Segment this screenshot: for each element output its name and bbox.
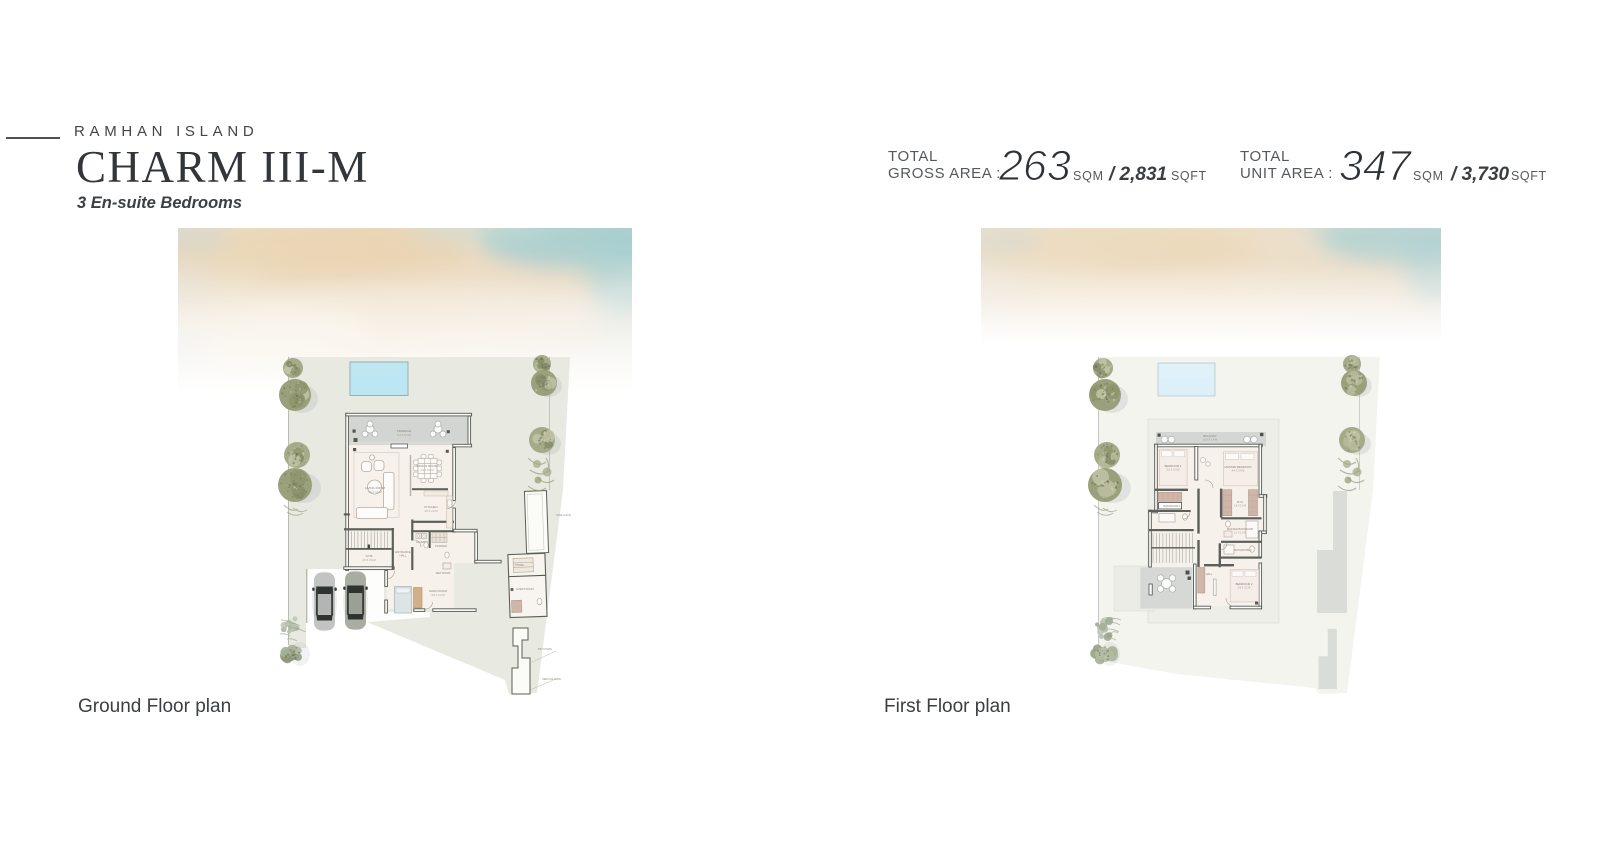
svg-text:6.1 X 3.1 M: 6.1 X 3.1 M — [397, 433, 410, 437]
svg-text:GUEST ROOM: GUEST ROOM — [516, 587, 534, 591]
svg-text:BEDROOM 1: BEDROOM 1 — [1165, 464, 1182, 468]
svg-text:HALL: HALL — [1206, 572, 1213, 576]
svg-text:4.5 X 2.0 M: 4.5 X 2.0 M — [362, 558, 375, 562]
svg-text:3.6 X 2.6 M: 3.6 X 2.6 M — [424, 509, 437, 513]
svg-text:BIN STORE: BIN STORE — [538, 647, 552, 651]
svg-text:KITCHEN: KITCHEN — [424, 505, 437, 509]
svg-text:POWDER: POWDER — [435, 544, 447, 548]
svg-text:3.9 X 3.1 M: 3.9 X 3.1 M — [420, 468, 433, 472]
svg-text:MASTER BEDROOM: MASTER BEDROOM — [1225, 465, 1253, 469]
svg-text:3.0 X 2.2 M: 3.0 X 2.2 M — [431, 593, 444, 597]
svg-text:4.4 X 3.6 M: 4.4 X 3.6 M — [1232, 470, 1245, 473]
svg-text:BALCONY: BALCONY — [1203, 434, 1217, 438]
svg-text:3.1 X 1.6 M: 3.1 X 1.6 M — [1234, 532, 1246, 535]
svg-text:WET ROOM: WET ROOM — [436, 571, 451, 575]
svg-text:MASTER BATHROOM: MASTER BATHROOM — [1227, 527, 1253, 531]
svg-text:SIDE GATE: SIDE GATE — [556, 513, 571, 517]
svg-text:BATHROOM 1: BATHROOM 1 — [1164, 504, 1182, 508]
svg-text:BEDROOM 2: BEDROOM 2 — [1236, 582, 1253, 586]
svg-text:TERRACE: TERRACE — [397, 429, 411, 433]
svg-text:SERVICE GATE: SERVICE GATE — [542, 677, 561, 681]
svg-text:10.9 X 1.4 M: 10.9 X 1.4 M — [1203, 439, 1217, 442]
svg-text:MAID ROOM: MAID ROOM — [429, 589, 447, 593]
svg-text:GYM: GYM — [366, 554, 373, 558]
svg-text:BATHROOM 2: BATHROOM 2 — [1235, 548, 1253, 552]
svg-text:5.6 X 4.6 M: 5.6 X 4.6 M — [368, 490, 381, 494]
svg-text:DINING ROOM: DINING ROOM — [417, 464, 438, 468]
svg-text:HALL: HALL — [400, 554, 407, 558]
svg-text:STORE: STORE — [515, 563, 524, 567]
svg-text:W.I.C: W.I.C — [1237, 500, 1243, 504]
svg-text:LIVING ROOM: LIVING ROOM — [365, 486, 386, 490]
svg-text:3.6 X 3.2 M: 3.6 X 3.2 M — [1238, 587, 1251, 590]
svg-text:3.6 X 3.2 M: 3.6 X 3.2 M — [1167, 469, 1180, 472]
svg-text:2.8 X 2.0 M: 2.8 X 2.0 M — [1234, 505, 1246, 508]
